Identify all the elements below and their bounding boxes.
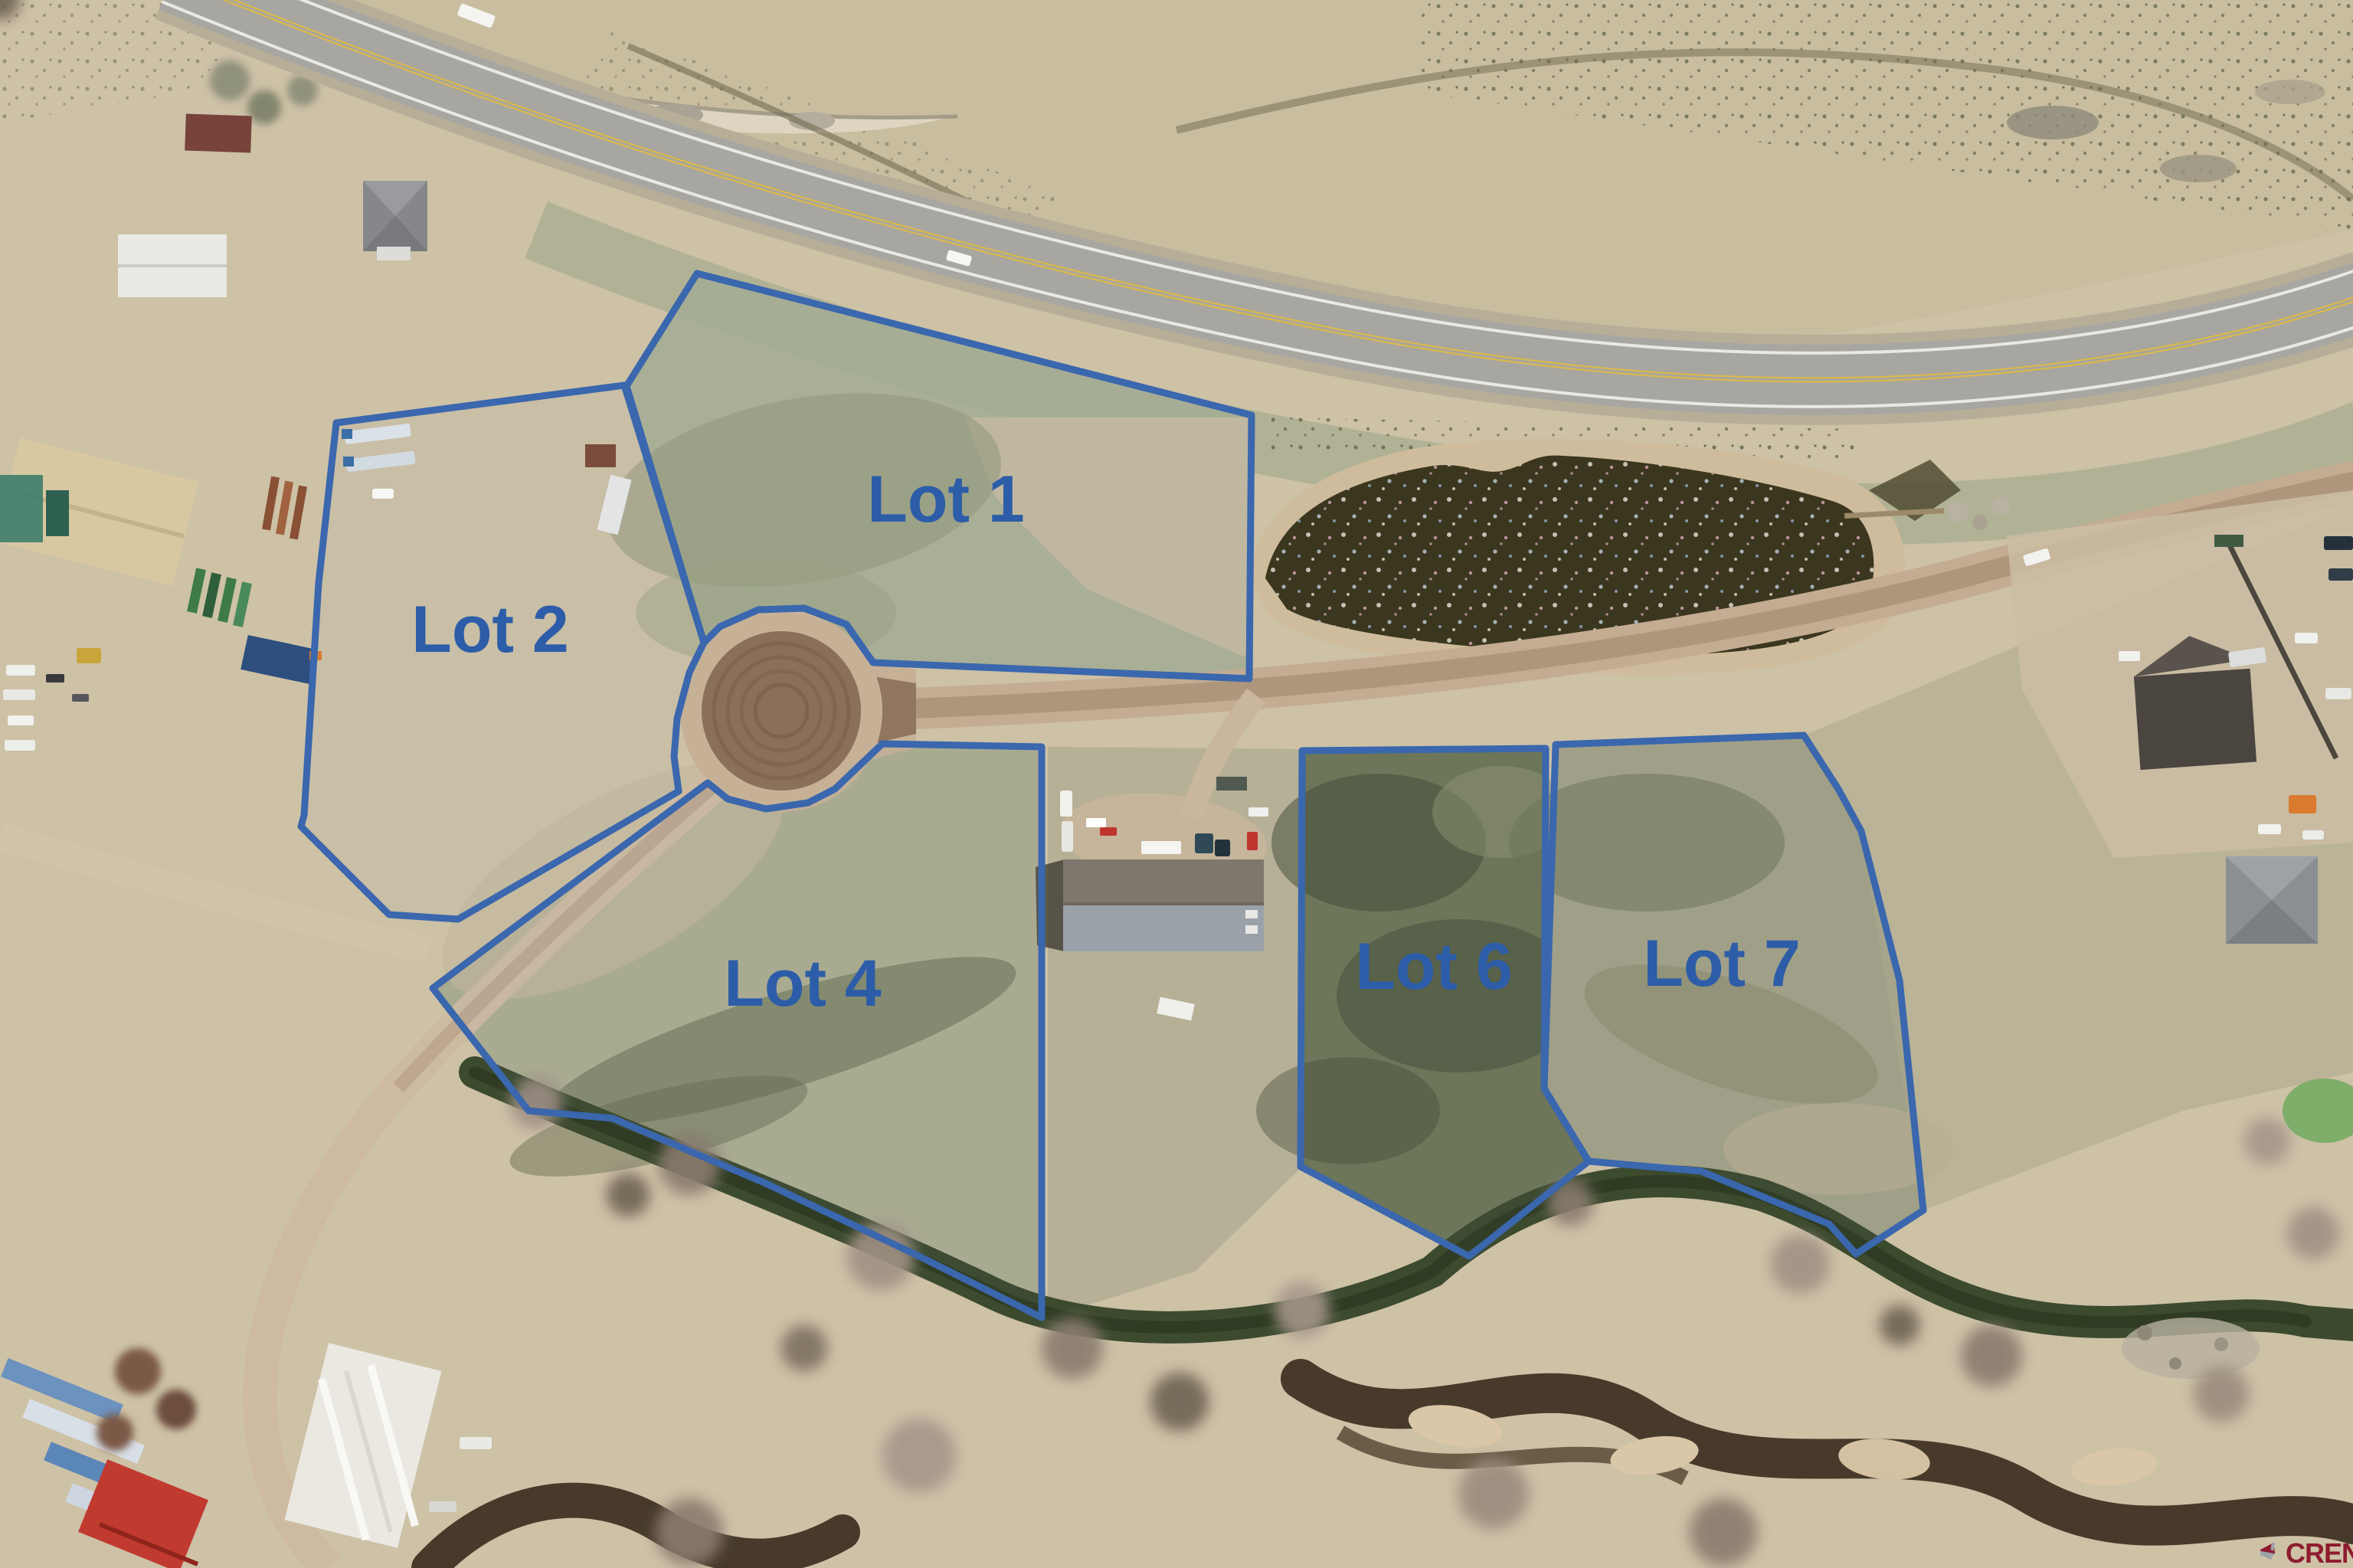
excavator (77, 648, 101, 663)
aerial-lot-map: Lot 1Lot 2Lot 4Lot 6Lot 7 CREN (0, 0, 2353, 1568)
orange-tractor (2289, 795, 2316, 813)
lot-4-label: Lot 4 (724, 947, 882, 1020)
lot-7-label: Lot 7 (1643, 927, 1800, 1000)
cren-logo-text: CREN (2286, 1537, 2353, 1568)
lot-2-label: Lot 2 (411, 593, 568, 666)
lot-1-label: Lot 1 (867, 463, 1024, 536)
lot-6-label: Lot 6 (1355, 930, 1512, 1003)
dark-roof-house (2134, 669, 2256, 770)
aerial-photo-scene: Lot 1Lot 2Lot 4Lot 6Lot 7 CREN (0, 0, 2353, 1568)
rust-shed (185, 114, 252, 153)
